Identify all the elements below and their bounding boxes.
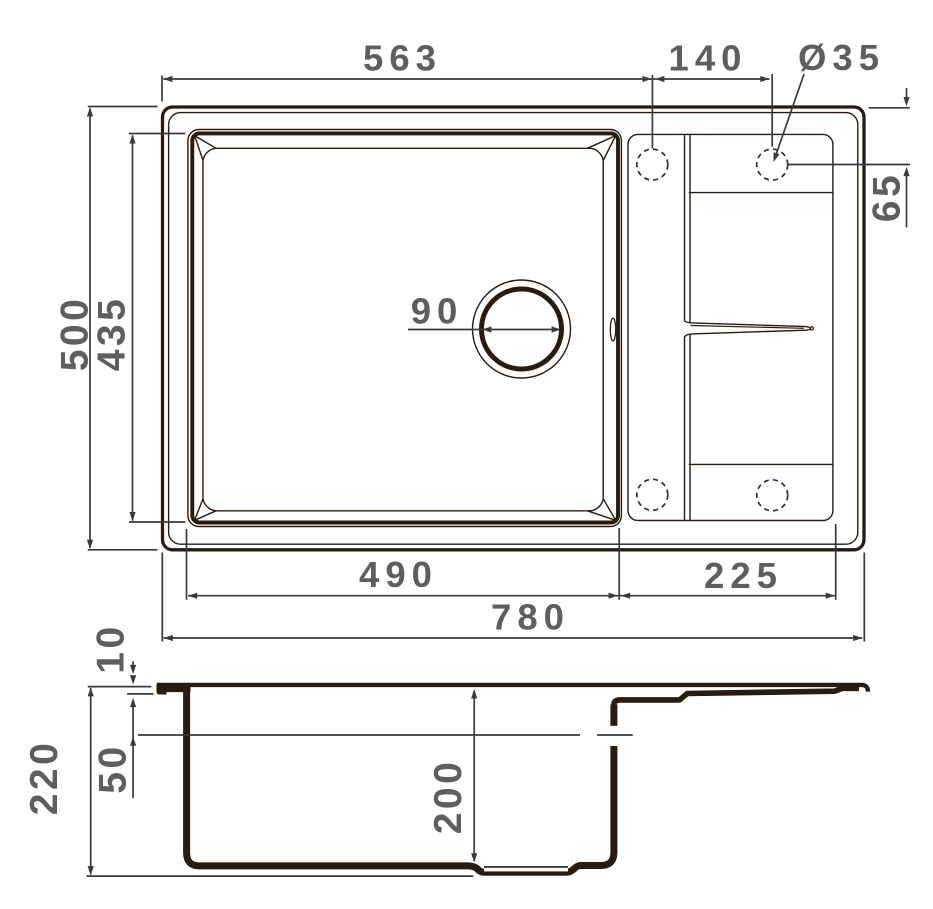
- svg-text:90: 90: [411, 291, 464, 332]
- svg-text:50: 50: [92, 743, 135, 793]
- svg-text:65: 65: [866, 172, 909, 222]
- svg-text:435: 435: [91, 296, 134, 372]
- svg-text:140: 140: [669, 38, 748, 79]
- svg-text:490: 490: [359, 554, 438, 595]
- svg-text:225: 225: [704, 555, 783, 596]
- svg-text:780: 780: [491, 597, 570, 638]
- svg-text:200: 200: [427, 759, 470, 835]
- svg-text:10: 10: [89, 623, 132, 673]
- svg-text:Ø35: Ø35: [798, 37, 885, 78]
- svg-text:563: 563: [363, 38, 442, 79]
- svg-text:220: 220: [23, 740, 66, 816]
